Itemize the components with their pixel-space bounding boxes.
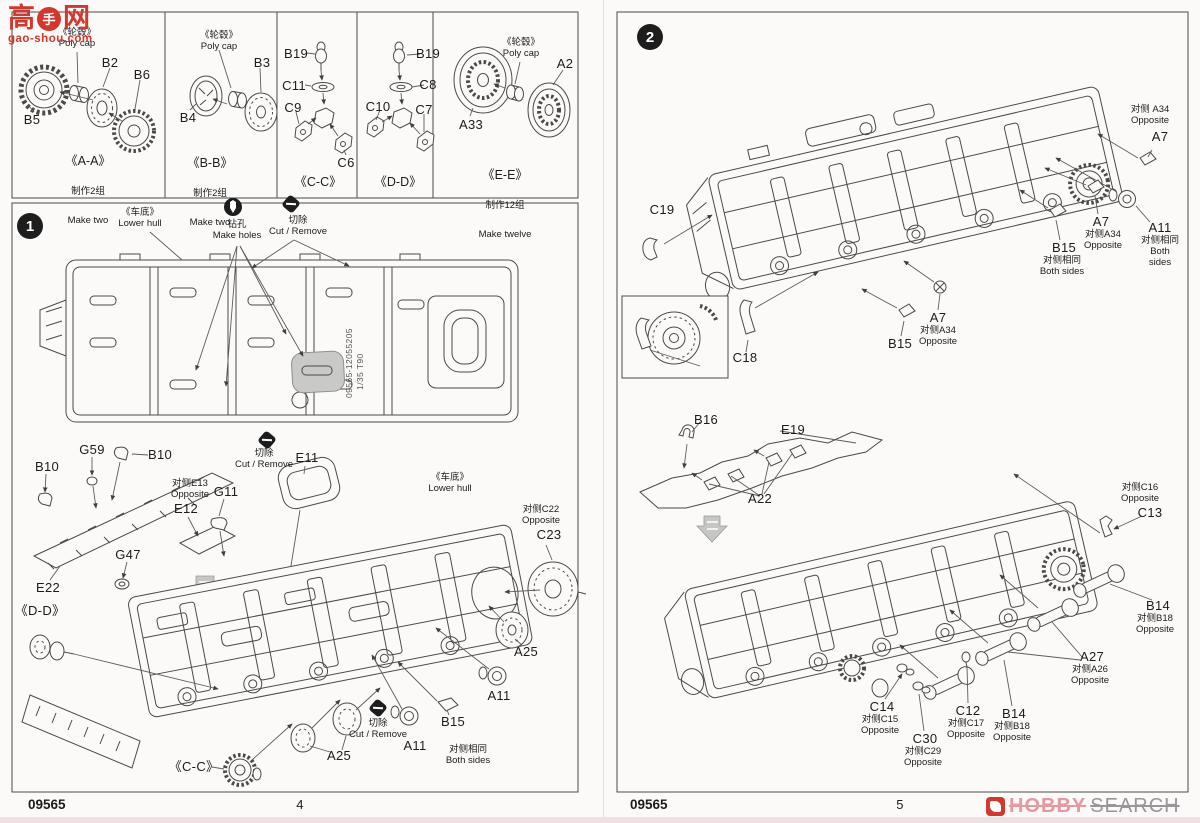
note-opposite-c16: 对侧C16 Opposite [1121,483,1159,505]
part-label-b10-right: B10 [148,448,172,463]
part-label-a33: A33 [459,118,483,133]
part-label-c23: C23 [537,528,562,543]
note-both-sides-a11: 对侧相同 Both sides [1140,236,1180,269]
part-label-a11-right: A11 [487,689,510,704]
part-label-e12: E12 [174,502,198,517]
note-both-sides-b15: 对侧相同 Both sides [1040,256,1084,278]
part-label-c7: C7 [415,103,432,118]
note-opposite-c17: 对侧C17 Opposite [947,719,985,741]
hobbysearch-watermark: HOBBY SEARCH [986,795,1180,818]
assembly-caption-cc: 《C-C》 [294,175,341,189]
part-label-b14-right: B14 [1146,599,1170,614]
part-label-b6: B6 [134,68,151,83]
polycap-note-ee: 《轮毂》 Poly cap [502,38,540,60]
gaoshou-char-right: 网 [63,5,90,32]
assembly-caption-dd: 《D-D》 [374,175,421,189]
assembly-caption-ee: 《E-E》 制作12组 Make twelve [479,150,532,260]
part-label-b4: B4 [180,111,197,126]
note-opposite-a34-mid: 对侧A34 Opposite [919,326,957,348]
part-label-a11-step2: A11 [1148,221,1171,236]
part-label-b15: B15 [441,715,465,730]
part-label-g11: G11 [214,485,239,500]
note-lower-hull-bottom: 《车底》 Lower hull [428,473,471,495]
kit-number-left: 09565 [28,797,66,812]
step2-badge: 2 [637,24,663,50]
step2-inset-detail [622,296,728,378]
part-label-b19-dd: B19 [416,47,440,62]
note-opposite-b18-bottom: 对侧B18 Opposite [993,722,1031,744]
hull-scale-text: 1/35 T90 [355,353,365,390]
part-label-a2: A2 [557,57,574,72]
part-label-a7-top: A7 [1152,130,1169,145]
part-label-b5: B5 [24,113,41,128]
cut-icon-mid [257,430,277,450]
part-label-b10-left: B10 [35,460,59,475]
note-both-sides-step1: 对侧相同 Both sides [446,745,490,767]
note-make-holes: 钻孔 Make holes [213,220,262,242]
part-label-c18: C18 [733,351,758,366]
part-label-b15-right: B15 [1052,241,1076,256]
note-opposite-c22: 对侧C22 Opposite [522,505,560,527]
part-label-e22: E22 [36,581,60,596]
part-label-a22: A22 [748,492,772,507]
cut-icon-top [281,194,301,214]
part-label-e11: E11 [295,451,318,466]
part-label-c30: C30 [913,732,938,747]
part-label-b15-mid: B15 [888,337,912,352]
part-label-b14-bottom: B14 [1002,707,1026,722]
part-label-b3: B3 [254,56,271,71]
hobbysearch-icon [986,797,1005,816]
part-label-c6: C6 [337,156,354,171]
part-label-g47: G47 [115,548,140,563]
kit-number-right: 09565 [630,797,668,812]
gaoshou-badge-icon: 手 [37,7,61,31]
part-label-a11-mid: A11 [403,739,426,754]
page-number-left: 4 [296,798,304,813]
note-lower-hull-top: 《车底》 Lower hull [118,208,161,230]
gaoshou-domain: gao-shou.com [8,33,93,45]
part-label-b19-cc: B19 [284,47,308,62]
part-label-c14: C14 [870,700,895,715]
part-label-c12: C12 [956,704,981,719]
note-cut-remove-top: 切除 Cut / Remove [269,216,327,238]
part-label-b16: B16 [694,413,718,428]
step1-badge: 1 [17,213,43,239]
gaoshou-watermark: 高 手 网 gao-shou.com [8,5,93,45]
ref-label-dd: 《D-D》 [15,604,66,619]
hull-marking-text: 09565-12055205 [344,328,354,398]
polycap-note-bb: 《轮毂》 Poly cap [200,31,238,53]
part-label-c9: C9 [284,101,301,116]
note-opposite-e13: 对侧E13 Opposite [171,479,209,501]
part-label-a7-mid: A7 [930,311,947,326]
hobbysearch-word1: HOBBY [1009,795,1086,818]
part-label-c13: C13 [1138,506,1163,521]
note-opposite-a34-right: 对侧A34 Opposite [1084,230,1122,252]
note-opposite-c15: 对侧C15 Opposite [861,715,899,737]
note-opposite-a34-top: 对侧 A34 Opposite [1131,105,1170,127]
note-opposite-c29: 对侧C29 Opposite [904,747,942,769]
step1-lower-hull-art [22,447,586,785]
step1-upper-hull-art: 09565-12055205 1/35 T90 [40,232,518,422]
part-label-a25-right: A25 [514,645,538,660]
part-label-c8: C8 [419,78,436,93]
hobbysearch-word2: SEARCH [1090,795,1179,818]
note-cut-remove-mid: 切除 Cut / Remove [235,449,293,471]
note-cut-remove-bottom: 切除 Cut / Remove [349,719,407,741]
ref-label-cc: 《C-C》 [169,760,220,775]
part-label-c11: C11 [282,79,306,94]
part-label-e19: E19 [781,423,805,438]
cut-icon-bottom [368,698,388,718]
part-label-c10: C10 [366,100,391,115]
part-label-b2: B2 [102,56,119,71]
part-label-g59: G59 [79,443,104,458]
part-label-a27: A27 [1080,650,1104,665]
note-opposite-a26: 对侧A26 Opposite [1071,665,1109,687]
assembly-caption-aa: 《A-A》 制作2组 Make two [65,136,111,246]
part-label-a7-right: A7 [1093,215,1110,230]
page-number-right: 5 [896,798,904,813]
note-opposite-b18-right: 对侧B18 Opposite [1136,614,1174,636]
gaoshou-char-left: 高 [8,5,35,32]
part-label-c19: C19 [650,203,675,218]
part-label-a25-bottom: A25 [327,749,351,764]
